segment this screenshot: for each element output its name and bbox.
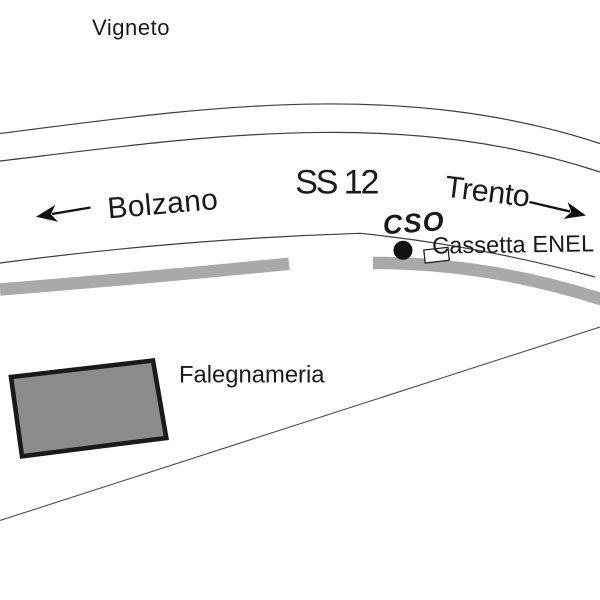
svg-text:Bolzano: Bolzano xyxy=(106,183,219,226)
svg-text:Vigneto: Vigneto xyxy=(92,15,170,40)
svg-text:Falegnameria: Falegnameria xyxy=(179,362,325,389)
svg-text:Cassetta ENEL: Cassetta ENEL xyxy=(432,230,594,258)
svg-text:SS 12: SS 12 xyxy=(295,164,378,202)
svg-text:Trento: Trento xyxy=(443,170,531,214)
